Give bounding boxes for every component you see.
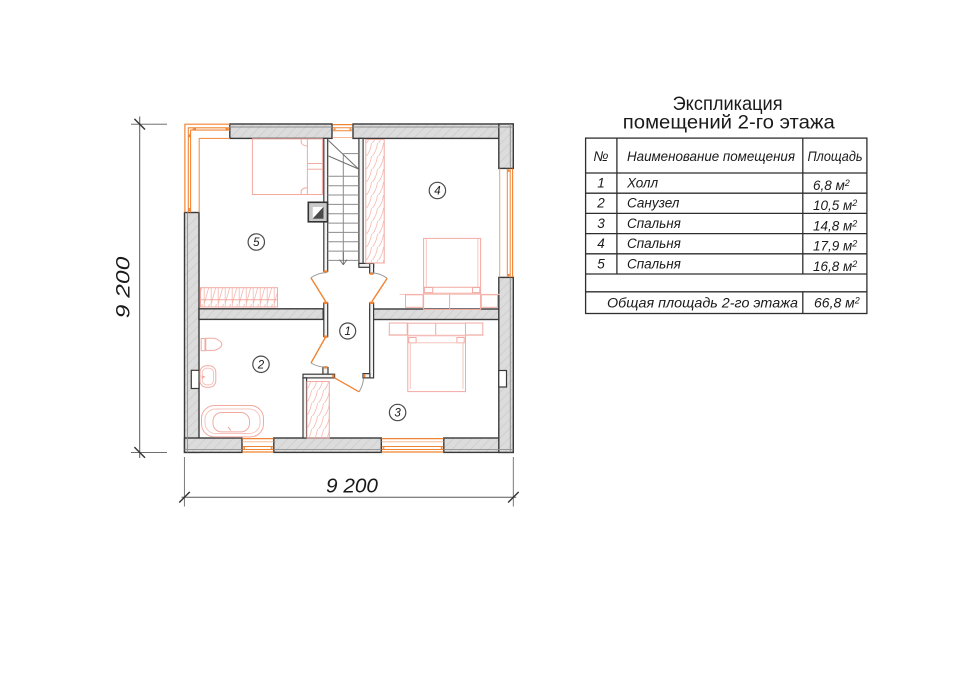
svg-text:3: 3 xyxy=(394,408,401,420)
svg-text:66,8 м2: 66,8 м2 xyxy=(814,295,860,311)
svg-text:Общая площадь 2-го этажа: Общая площадь 2-го этажа xyxy=(607,295,798,311)
svg-text:6,8 м2: 6,8 м2 xyxy=(813,178,850,193)
svg-text:№: № xyxy=(593,148,608,164)
svg-text:1: 1 xyxy=(344,326,350,338)
svg-text:Наименование помещения: Наименование помещения xyxy=(627,148,795,164)
svg-text:5: 5 xyxy=(597,256,605,271)
svg-text:Санузел: Санузел xyxy=(627,196,680,211)
svg-text:14,8 м2: 14,8 м2 xyxy=(813,218,857,233)
svg-text:3: 3 xyxy=(597,216,605,231)
svg-text:помещений 2-го этажа: помещений 2-го этажа xyxy=(623,111,835,133)
svg-text:5: 5 xyxy=(253,237,260,249)
svg-text:16,8 м2: 16,8 м2 xyxy=(813,259,857,274)
svg-text:Спальня: Спальня xyxy=(627,256,681,271)
svg-text:Площадь: Площадь xyxy=(808,148,863,164)
svg-text:4: 4 xyxy=(434,186,440,198)
svg-text:9 200: 9 200 xyxy=(326,476,378,498)
svg-text:Спальня: Спальня xyxy=(627,236,681,251)
svg-text:17,9 м2: 17,9 м2 xyxy=(813,239,857,254)
svg-text:2: 2 xyxy=(257,360,265,372)
svg-text:9 200: 9 200 xyxy=(114,256,135,318)
svg-text:4: 4 xyxy=(597,236,605,251)
svg-text:Холл: Холл xyxy=(626,176,659,191)
svg-text:2: 2 xyxy=(596,196,605,211)
svg-text:1: 1 xyxy=(597,176,605,191)
svg-text:Спальня: Спальня xyxy=(627,216,681,231)
svg-text:10,5 м2: 10,5 м2 xyxy=(813,198,857,213)
